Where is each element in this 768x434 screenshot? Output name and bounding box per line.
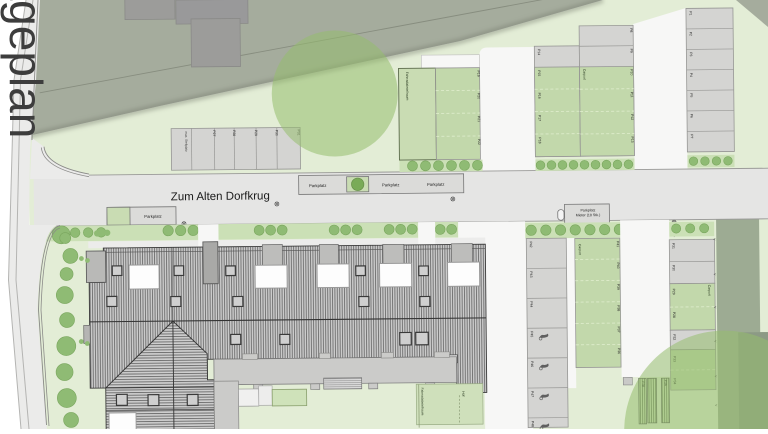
svg-text:P43: P43 [529,271,533,277]
svg-text:P28: P28 [672,312,676,318]
svg-text:Parkplatz: Parkplatz [580,208,595,212]
svg-text:P18: P18 [538,137,542,143]
svg-text:P11: P11 [630,92,634,98]
svg-text:P40: P40 [616,263,620,269]
svg-text:P32: P32 [672,334,676,340]
svg-text:P44: P44 [529,301,533,307]
svg-text:P10: P10 [630,69,634,75]
svg-text:P37: P37 [617,327,621,333]
svg-text:P28: P28 [232,130,236,136]
svg-text:P3: P3 [689,52,693,56]
svg-text:Zum Alten Dorfkrug: Zum Alten Dorfkrug [171,190,270,203]
svg-text:P19: P19 [476,71,480,77]
svg-text:P2: P2 [689,32,693,36]
svg-text:Parkplatz: Parkplatz [144,214,162,219]
svg-text:P9: P9 [629,49,633,53]
svg-text:Parkplatz: Parkplatz [382,182,400,187]
svg-text:P42: P42 [529,241,533,247]
svg-text:Carport: Carport [707,285,711,296]
svg-text:Parkplatz: Parkplatz [427,182,445,187]
svg-text:Carport: Carport [582,69,586,80]
svg-text:max. Stellplatz: max. Stellplatz [184,131,188,152]
svg-text:P8: P8 [629,28,633,32]
svg-text:P38: P38 [616,305,620,311]
svg-text:P31: P31 [671,243,675,249]
svg-text:Parkplatz: Parkplatz [309,183,327,188]
svg-text:Mieter (10 Stk.): Mieter (10 Stk.) [576,213,601,217]
svg-text:P17: P17 [537,115,541,121]
svg-text:Carport: Carport [578,244,582,255]
svg-text:Lageplan: Lageplan [0,0,52,138]
svg-text:P15: P15 [537,70,541,76]
svg-text:P27: P27 [212,130,216,136]
svg-text:Fahrradabstellraum: Fahrradabstellraum [420,388,424,416]
svg-text:P21: P21 [477,116,481,122]
svg-text:P48: P48 [531,421,535,427]
svg-text:P20: P20 [477,93,481,99]
svg-text:P22: P22 [477,139,481,145]
svg-text:Fahrradabstellraum: Fahrradabstellraum [405,72,409,101]
svg-text:P30: P30 [672,265,676,271]
svg-text:P13: P13 [630,136,634,142]
svg-text:P45: P45 [530,331,534,337]
svg-text:P14: P14 [537,49,541,55]
svg-text:P36: P36 [617,348,621,354]
svg-text:P47: P47 [530,391,534,397]
svg-text:P46: P46 [530,361,534,367]
svg-text:P41: P41 [616,241,620,247]
svg-text:P1: P1 [688,11,692,15]
svg-text:P6: P6 [689,114,693,118]
svg-text:P39: P39 [616,284,620,290]
svg-text:P16: P16 [537,93,541,99]
svg-text:P7: P7 [690,134,694,138]
svg-text:P29: P29 [672,289,676,295]
svg-text:P29: P29 [254,130,258,136]
svg-text:P12: P12 [630,114,634,120]
svg-text:P30: P30 [275,130,279,136]
svg-text:P4: P4 [689,73,693,77]
svg-text:P5: P5 [689,93,693,97]
svg-text:Hof: Hof [461,391,465,396]
